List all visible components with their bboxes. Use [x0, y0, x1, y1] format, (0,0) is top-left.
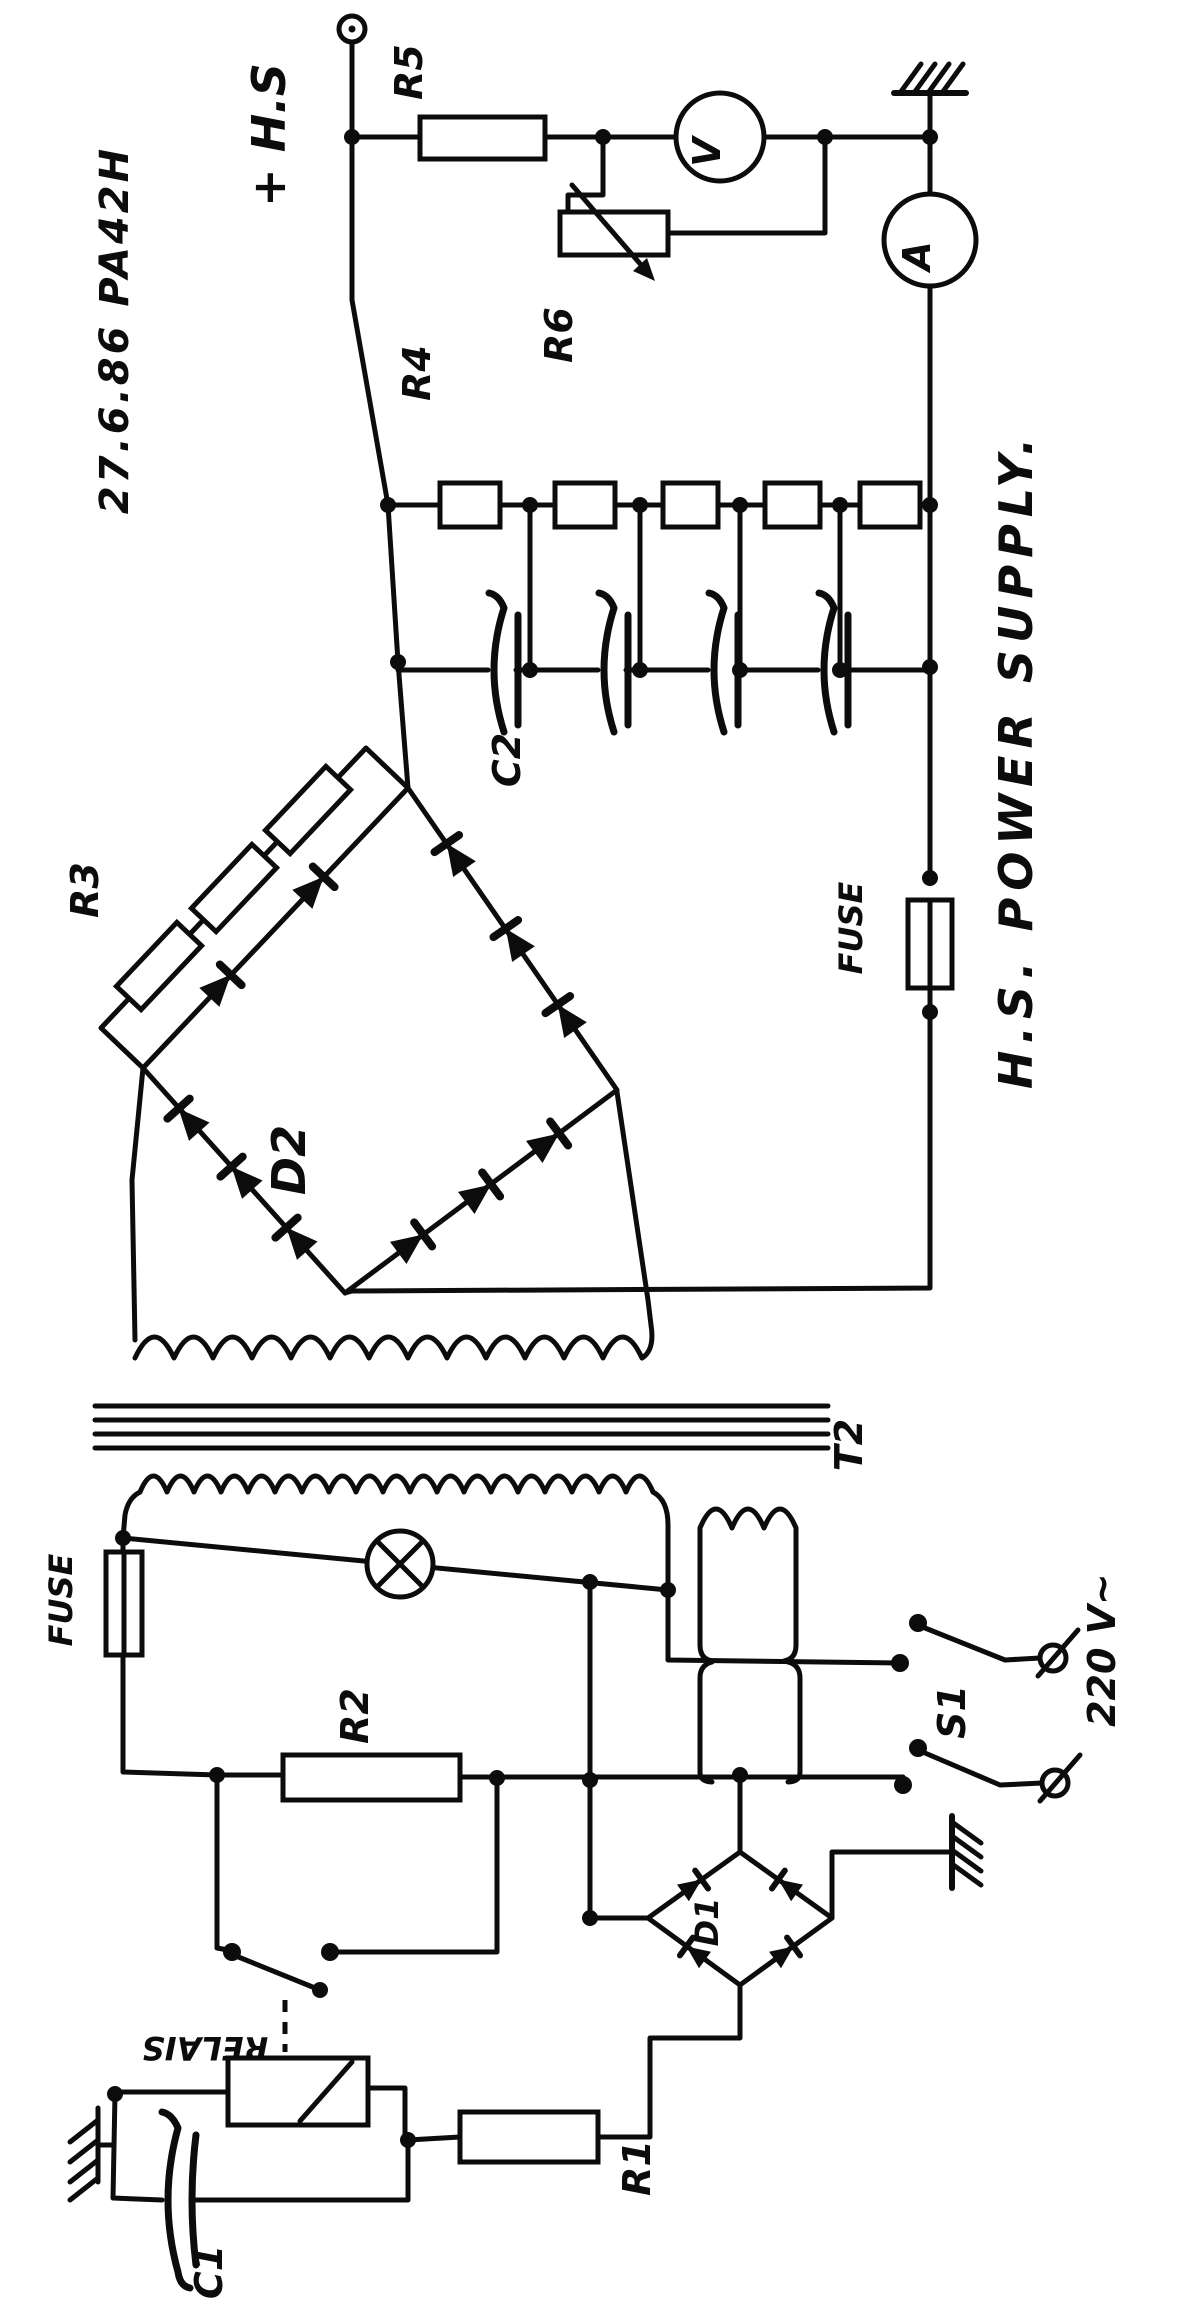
d2-diode-9 [389, 1222, 432, 1265]
label-d1: D1 [688, 1898, 726, 1947]
resistor-r3-3 [265, 766, 350, 853]
ground-top-icon [894, 64, 966, 135]
ground-relay-icon [70, 2108, 113, 2200]
label-t2: T2 [827, 1419, 871, 1471]
d2-diode-3 [546, 996, 588, 1039]
bridge-d1-outline [648, 1852, 832, 1985]
d2-diode-11 [525, 1121, 568, 1164]
contact-right-riser [338, 1778, 497, 1952]
resistor-r3-1 [116, 922, 201, 1009]
d2-diode-4 [494, 920, 536, 963]
resistor-r4-5 [860, 483, 920, 527]
core-t2 [95, 1406, 828, 1448]
ammeter [884, 194, 976, 286]
resistor-r4-4 [765, 483, 820, 527]
bridge-d2-outline [143, 788, 617, 1293]
primary-tap-sections [700, 1509, 800, 1782]
label-c1: C1 [187, 2245, 231, 2299]
d1-dc-lead [598, 1985, 740, 2137]
primary-right-lead [653, 1492, 668, 1590]
voltmeter [676, 93, 764, 181]
output-plus-hs-label: + H.S [242, 63, 296, 207]
capacitor-c2-3 [709, 593, 738, 732]
resistor-r5 [420, 117, 545, 159]
secondary-right-lead [617, 1092, 652, 1358]
label-fuse-primary: FUSE [42, 1553, 80, 1646]
resistor-r4-2 [555, 483, 615, 527]
switch-s1 [891, 1614, 1080, 1801]
capacitor-c2-4 [819, 593, 848, 732]
hv-plus-bus [352, 42, 408, 788]
d2-diode-5 [435, 835, 477, 878]
label-c2: C2 [485, 733, 529, 787]
circuit-schematic: V A [0, 0, 1185, 2305]
label-r2: R2 [333, 1688, 377, 1744]
d2-diode-10 [457, 1172, 500, 1215]
s1-upper-arm [925, 1628, 1040, 1660]
r4-c2-drops [530, 505, 840, 670]
s1-lower-fixed-contact [894, 1776, 912, 1794]
relay-contact-arm-tip [312, 1982, 328, 1998]
resistor-r4-1 [440, 483, 500, 527]
primary-winding [140, 1476, 653, 1492]
secondary-left-lead [132, 1068, 143, 1340]
capacitor-c2-1 [489, 593, 518, 732]
resistor-r1 [460, 2112, 598, 2162]
mains-voltage-label: 220 V~ [1080, 1573, 1124, 1727]
resistor-r4-3 [663, 483, 718, 527]
ammeter-letter: A [895, 241, 939, 273]
label-s1: S1 [930, 1685, 974, 1739]
resistor-r3-2 [191, 844, 276, 931]
label-r4: R4 [395, 345, 439, 401]
relay-contact-arm [236, 1956, 320, 1990]
dc-minus-rail [345, 286, 930, 1293]
s1-lower-arm [925, 1753, 1042, 1785]
ground-d1-icon [910, 1816, 981, 1888]
s1-upper-fixed-contact [891, 1654, 909, 1672]
scanned-schematic-page: V A [0, 0, 1185, 2305]
contact-left-riser [217, 1775, 228, 1950]
secondary-winding [135, 1337, 642, 1358]
label-r3: R3 [63, 862, 107, 918]
r3-chain-wire [101, 748, 408, 1068]
d1-ground-lead [832, 1852, 912, 1918]
capacitor-c2-2 [599, 593, 628, 732]
label-fuse-hv: FUSE [832, 881, 870, 974]
label-relay: RELAIS [142, 2029, 269, 2067]
voltmeter-letter: V [685, 135, 729, 167]
label-d2: D2 [262, 1125, 316, 1195]
schematic-title: H.S. POWER SUPPLY. [989, 431, 1043, 1089]
junction-dots [107, 129, 938, 2148]
resistor-r2 [283, 1755, 460, 1800]
hv-output-terminal-center [349, 26, 356, 33]
date-reference-label: 27.6.86 PA42H [92, 146, 138, 514]
label-r5: R5 [387, 44, 431, 100]
d1-left-riser [590, 1582, 648, 1918]
label-r1: R1 [615, 2140, 659, 2196]
label-r6: R6 [537, 307, 581, 363]
